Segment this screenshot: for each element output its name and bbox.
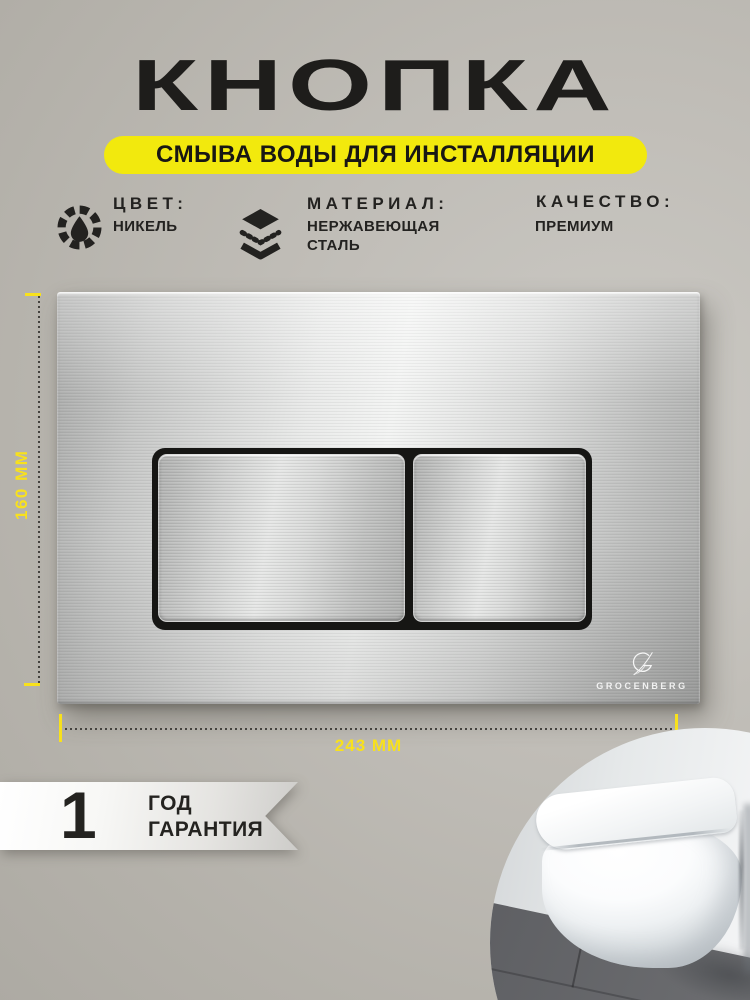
warranty-ribbon-shape: 1 ГОД ГАРАНТИЯ [0, 782, 298, 850]
subtitle-banner: СМЫВА ВОДЫ ДЛЯ ИНСТАЛЛЯЦИИ [104, 136, 647, 174]
warranty-ribbon: 1 ГОД ГАРАНТИЯ [0, 782, 298, 850]
feature-material-label: МАТЕРИАЛ: [307, 194, 448, 214]
feature-quality-value: ПРЕМИУМ [535, 217, 614, 236]
warranty-word: ГАРАНТИЯ [148, 818, 263, 841]
brand-name: GROCENBERG [594, 681, 690, 691]
page-title: КНОПКА [132, 55, 617, 117]
grocenberg-monogram-icon [627, 649, 657, 679]
product-banner: КНОПКА СМЫВА ВОДЫ ДЛЯ ИНСТАЛЛЯЦИИ ЦВЕТ: … [0, 0, 750, 1000]
droplet-color-icon [57, 205, 102, 250]
feature-material-value: НЕРЖАВЕЮЩАЯ СТАЛЬ [307, 217, 472, 255]
button-recess [152, 448, 592, 630]
height-dimension-line [38, 296, 40, 684]
feature-color-label: ЦВЕТ: [113, 194, 187, 214]
toilet-wall-seam [739, 810, 744, 950]
feature-color-value: НИКЕЛЬ [113, 217, 177, 236]
feature-quality-label: КАЧЕСТВО: [536, 192, 674, 212]
flush-button-small [413, 454, 586, 622]
toilet-photo [490, 728, 750, 1000]
subtitle-text: СМЫВА ВОДЫ ДЛЯ ИНСТАЛЛЯЦИИ [156, 141, 595, 169]
width-dimension-line [60, 728, 677, 730]
height-dimension-label: 160 ММ [11, 438, 33, 532]
height-dimension-tick-top [25, 293, 41, 296]
wall-hung-toilet [536, 780, 750, 980]
flush-plate: GROCENBERG [57, 292, 700, 704]
header: КНОПКА [0, 54, 750, 118]
height-dimension-tick-bottom [24, 683, 40, 686]
warranty-years-number: 1 [60, 781, 97, 849]
flush-button-large [158, 454, 405, 622]
brand-mark: GROCENBERG [594, 649, 690, 691]
layers-icon [237, 206, 284, 263]
warranty-label: ГОД ГАРАНТИЯ [148, 791, 263, 843]
width-dimension-label: 243 ММ [60, 736, 677, 756]
warranty-unit: ГОД [148, 792, 192, 815]
